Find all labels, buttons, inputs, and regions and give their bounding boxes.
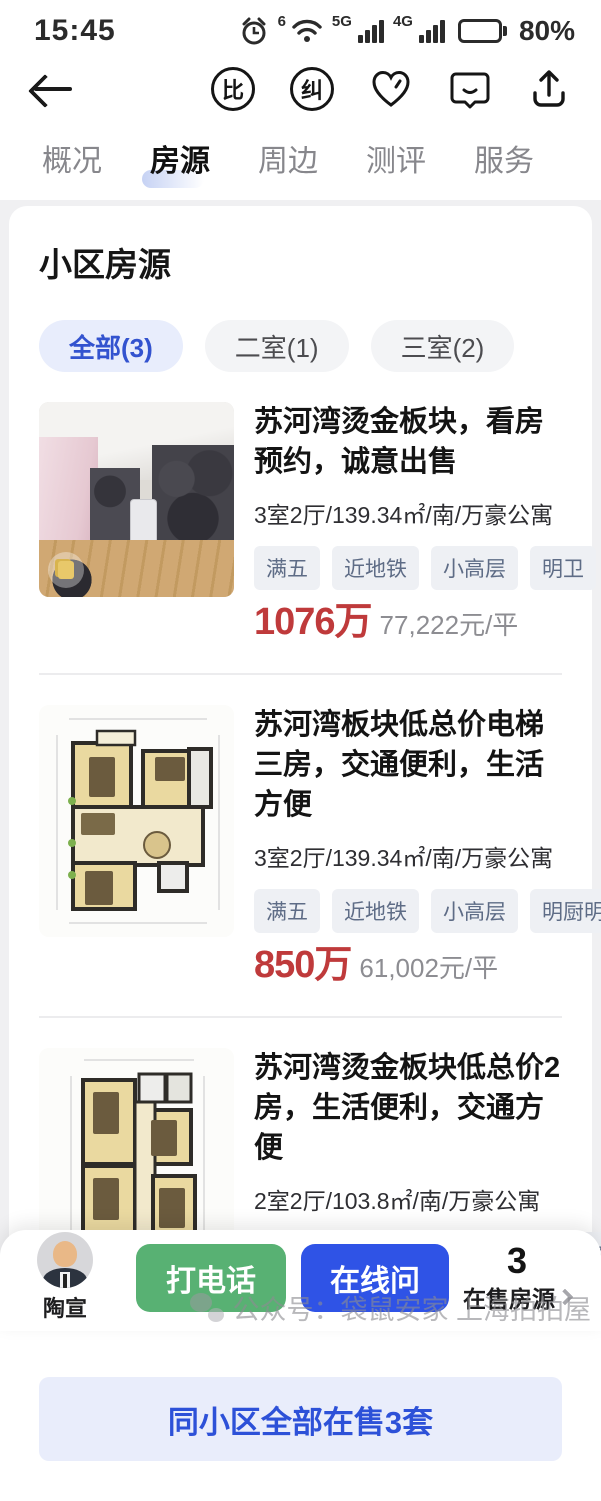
section-title: 小区房源 bbox=[39, 206, 562, 286]
listing-price: 850万 bbox=[254, 933, 351, 988]
wifi-gen-label: 6 bbox=[278, 13, 286, 30]
agent-avatar bbox=[37, 1232, 93, 1288]
listing-price: 1076万 bbox=[254, 590, 372, 645]
listing-photo[interactable] bbox=[39, 402, 234, 597]
all-listings-button[interactable]: 同小区全部在售3套 bbox=[39, 1377, 562, 1461]
battery-percent: 80% bbox=[519, 15, 575, 47]
correction-button[interactable]: 纠 bbox=[290, 67, 334, 111]
listing-title: 苏河湾烫金板块，看房预约，诚意出售 bbox=[254, 402, 562, 482]
listing-card[interactable]: 苏河湾烫金板块，看房预约，诚意出售 3室2厅/139.34㎡/南/万豪公寓 满五… bbox=[39, 372, 562, 673]
tag: 满五 bbox=[254, 546, 320, 590]
listing-tags: 满五 近地铁 小高层 明厨明卫 bbox=[254, 889, 562, 933]
alarm-clock-icon bbox=[239, 16, 269, 46]
tab-services[interactable]: 服务 bbox=[474, 136, 534, 180]
floor-plan-image[interactable] bbox=[39, 705, 234, 937]
favorite-heart-icon[interactable] bbox=[369, 67, 413, 111]
signal-bars-4g-icon bbox=[419, 19, 445, 43]
tag: 近地铁 bbox=[332, 546, 419, 590]
network-5g-label: 5G bbox=[332, 13, 352, 30]
tab-overview[interactable]: 概况 bbox=[42, 136, 102, 180]
filter-chips: 全部(3) 二室(1) 三室(2) bbox=[39, 320, 562, 372]
listings-count: 3 bbox=[507, 1242, 527, 1280]
header: 比 纠 bbox=[0, 56, 601, 122]
tag: 小高层 bbox=[431, 546, 518, 590]
battery-icon bbox=[458, 19, 507, 43]
tag: 近地铁 bbox=[332, 889, 419, 933]
tag: 小高层 bbox=[431, 889, 518, 933]
tag: 明卫 bbox=[530, 546, 596, 590]
listings-count-label: 在售房源 bbox=[463, 1280, 555, 1314]
wifi-icon bbox=[291, 18, 323, 44]
tab-bar: 概况 房源 周边 测评 服务 bbox=[0, 122, 601, 200]
back-button[interactable] bbox=[30, 67, 80, 111]
tab-reviews[interactable]: 测评 bbox=[366, 136, 426, 180]
listing-specs: 3室2厅/139.34㎡/南/万豪公寓 bbox=[254, 496, 562, 530]
tab-nearby[interactable]: 周边 bbox=[258, 136, 318, 180]
correction-badge-label: 纠 bbox=[301, 73, 323, 105]
bottom-bar: 陶宣 打电话 在线问 3 在售房源 bbox=[0, 1230, 601, 1331]
chevron-right-icon bbox=[557, 1288, 574, 1305]
filter-chip-2room[interactable]: 二室(1) bbox=[205, 320, 349, 372]
listing-card[interactable]: 苏河湾板块低总价电梯三房，交通便利，生活方便 3室2厅/139.34㎡/南/万豪… bbox=[39, 673, 562, 1016]
filter-chip-3room[interactable]: 三室(2) bbox=[371, 320, 515, 372]
content-zone: 小区房源 全部(3) 二室(1) 三室(2) 苏河湾烫金板块，看房预约，诚意出售… bbox=[0, 200, 601, 1331]
share-icon[interactable] bbox=[527, 67, 571, 111]
listing-tags: 满五 近地铁 小高层 明卫 bbox=[254, 546, 562, 590]
listing-unit-price: 61,002元/平 bbox=[359, 948, 498, 985]
call-button[interactable]: 打电话 bbox=[136, 1244, 286, 1312]
listing-specs: 3室2厅/139.34㎡/南/万豪公寓 bbox=[254, 839, 562, 873]
tab-listings[interactable]: 房源 bbox=[150, 136, 210, 180]
tag: 明厨明卫 bbox=[530, 889, 601, 933]
status-bar: 15:45 6 5G 4G 80% bbox=[0, 0, 601, 56]
agent-name: 陶宣 bbox=[43, 1291, 87, 1323]
compare-badge-label: 比 bbox=[222, 73, 244, 105]
tag: 满五 bbox=[254, 889, 320, 933]
panorama-badge-icon bbox=[48, 552, 84, 588]
listing-specs: 2室2厅/103.8㎡/南/万豪公寓 bbox=[254, 1182, 562, 1216]
network-4g-label: 4G bbox=[393, 13, 413, 30]
listings-count-link[interactable]: 3 在售房源 bbox=[463, 1242, 577, 1314]
listing-title: 苏河湾板块低总价电梯三房，交通便利，生活方便 bbox=[254, 705, 562, 825]
signal-bars-5g-icon bbox=[358, 19, 384, 43]
agent-profile[interactable]: 陶宣 bbox=[30, 1232, 100, 1323]
chat-button[interactable]: 在线问 bbox=[301, 1244, 449, 1312]
compare-button[interactable]: 比 bbox=[211, 67, 255, 111]
status-time: 15:45 bbox=[34, 14, 116, 48]
filter-chip-all[interactable]: 全部(3) bbox=[39, 320, 183, 372]
comment-icon[interactable] bbox=[448, 67, 492, 111]
listing-title: 苏河湾烫金板块低总价2房，生活便利，交通方便 bbox=[254, 1048, 562, 1168]
listing-unit-price: 77,222元/平 bbox=[380, 605, 519, 642]
